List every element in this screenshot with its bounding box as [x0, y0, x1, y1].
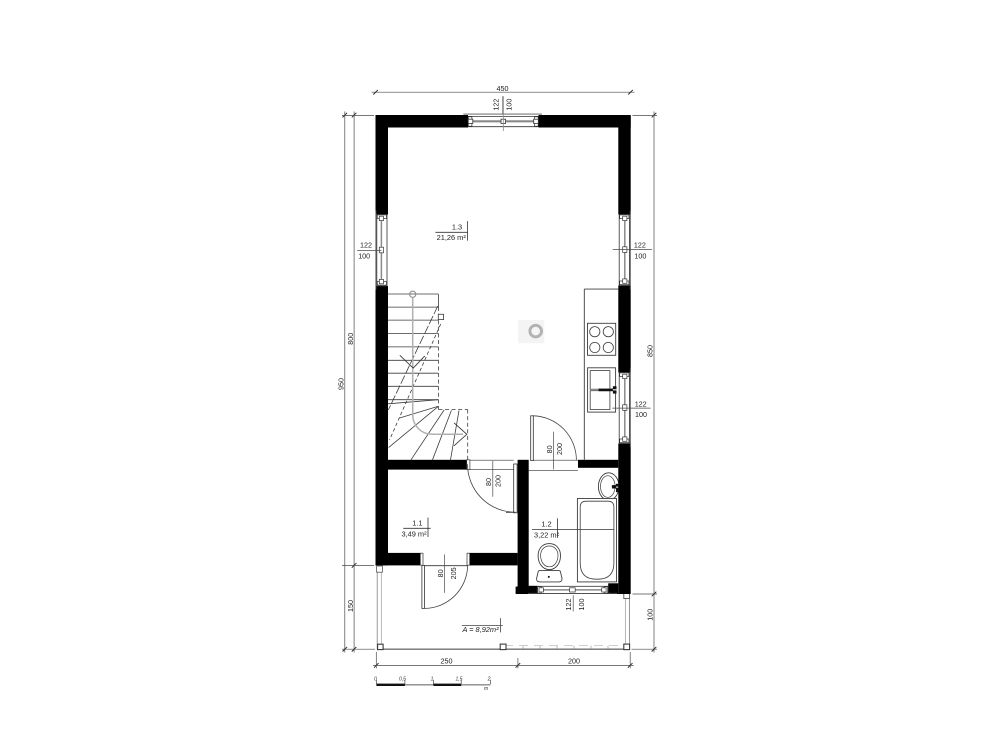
svg-text:0: 0	[374, 677, 377, 683]
svg-text:80: 80	[484, 478, 493, 486]
svg-text:450: 450	[497, 84, 509, 93]
svg-text:200: 200	[494, 475, 503, 487]
svg-text:m: m	[484, 686, 488, 692]
svg-text:200: 200	[568, 656, 580, 665]
svg-text:2: 2	[487, 677, 491, 683]
svg-text:122: 122	[564, 599, 573, 611]
svg-text:100: 100	[577, 599, 586, 611]
svg-text:100: 100	[634, 252, 646, 261]
svg-text:200: 200	[555, 443, 564, 455]
svg-text:21,26 m²: 21,26 m²	[437, 233, 467, 242]
svg-text:800: 800	[346, 333, 355, 345]
svg-text:100: 100	[645, 609, 654, 621]
svg-text:80: 80	[545, 445, 554, 453]
svg-text:1: 1	[431, 677, 434, 683]
svg-text:205: 205	[449, 567, 458, 579]
svg-text:850: 850	[646, 345, 655, 357]
svg-text:3,49 m²: 3,49 m²	[401, 529, 427, 538]
svg-text:100: 100	[635, 410, 647, 419]
svg-text:122: 122	[634, 241, 646, 250]
svg-text:1.3: 1.3	[452, 222, 462, 231]
svg-text:950: 950	[336, 378, 345, 390]
svg-text:250: 250	[441, 656, 453, 665]
svg-text:122: 122	[360, 241, 372, 250]
svg-text:1,5: 1,5	[456, 677, 463, 683]
svg-text:122: 122	[635, 399, 647, 408]
svg-text:100: 100	[358, 251, 370, 260]
svg-text:150: 150	[346, 600, 355, 612]
svg-text:0,5: 0,5	[399, 677, 406, 683]
svg-text:1.1: 1.1	[412, 518, 422, 527]
svg-text:80: 80	[436, 569, 445, 577]
svg-text:122: 122	[492, 99, 501, 111]
svg-text:3,22 m²: 3,22 m²	[534, 531, 560, 540]
svg-text:1.2: 1.2	[541, 519, 551, 528]
svg-text:A = 8,92m²: A = 8,92m²	[461, 625, 499, 634]
svg-text:100: 100	[504, 99, 513, 111]
